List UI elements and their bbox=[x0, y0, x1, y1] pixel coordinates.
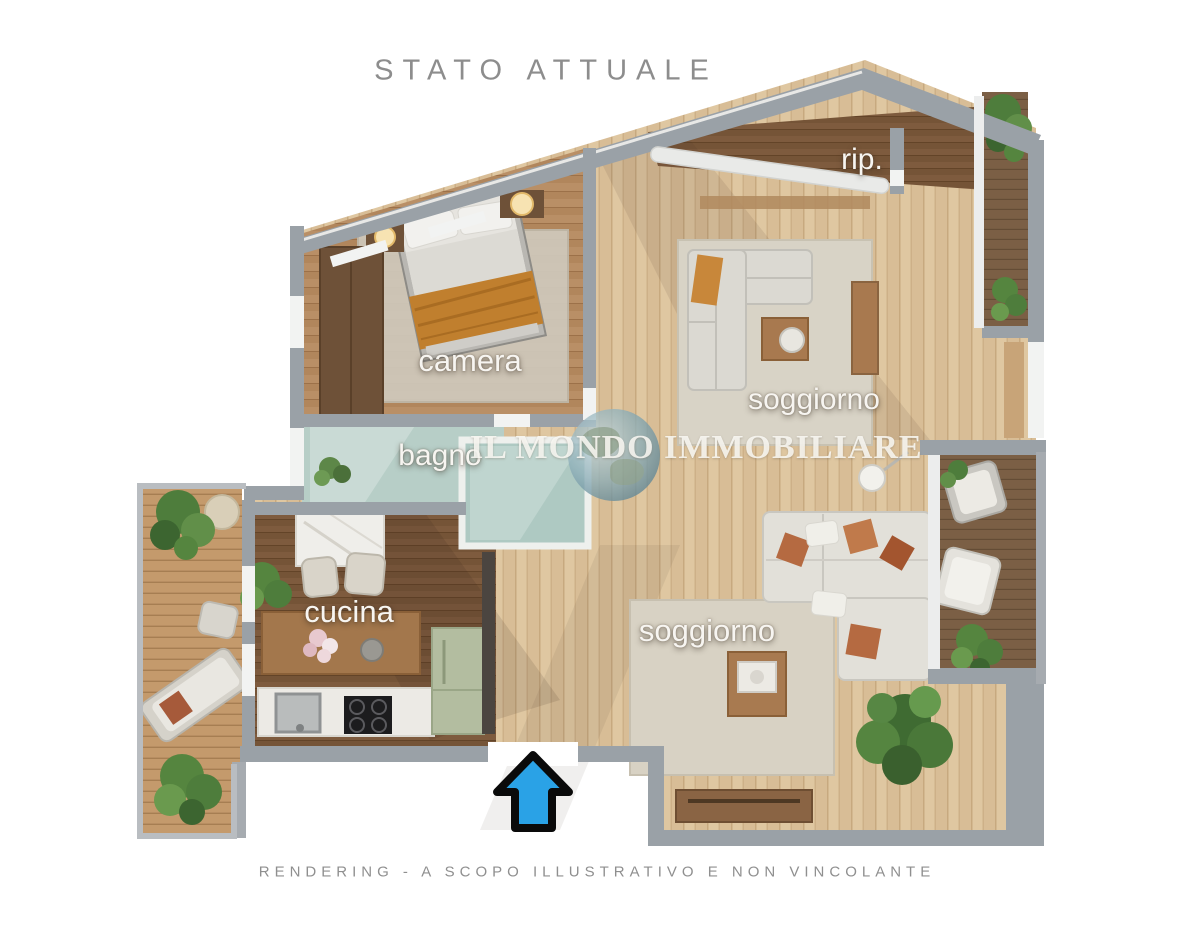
fridge bbox=[432, 628, 484, 734]
watermark-text: IL MONDO IMMOBILIARE bbox=[470, 429, 870, 467]
table-tray bbox=[780, 328, 804, 352]
bench bbox=[700, 196, 870, 209]
page-title: STATO ATTUALE bbox=[374, 55, 718, 88]
watermark: IL MONDO IMMOBILIARE bbox=[470, 413, 870, 493]
room-label-camera: camera bbox=[418, 343, 521, 379]
disclaimer-text: RENDERING - A SCOPO ILLUSTRATIVO E NON V… bbox=[259, 864, 935, 881]
room-label-rip: rip. bbox=[841, 143, 883, 177]
terrace-stool bbox=[197, 601, 239, 640]
room-label-soggiorno-upper: soggiorno bbox=[748, 383, 880, 417]
cooktop bbox=[344, 696, 392, 734]
table-decor bbox=[750, 670, 764, 684]
floor-plan-rendering: STATO ATTUALE rip. camera bagno soggiorn… bbox=[0, 0, 1192, 948]
stool bbox=[344, 552, 385, 595]
room-label-cucina: cucina bbox=[304, 594, 394, 630]
room-label-soggiorno-lower: soggiorno bbox=[639, 613, 775, 649]
media-console bbox=[676, 790, 812, 822]
tall-cabinet bbox=[482, 552, 495, 734]
bedside-lamp bbox=[511, 193, 533, 215]
stool bbox=[301, 556, 339, 597]
sideboard bbox=[852, 282, 878, 374]
faucet bbox=[296, 724, 304, 732]
